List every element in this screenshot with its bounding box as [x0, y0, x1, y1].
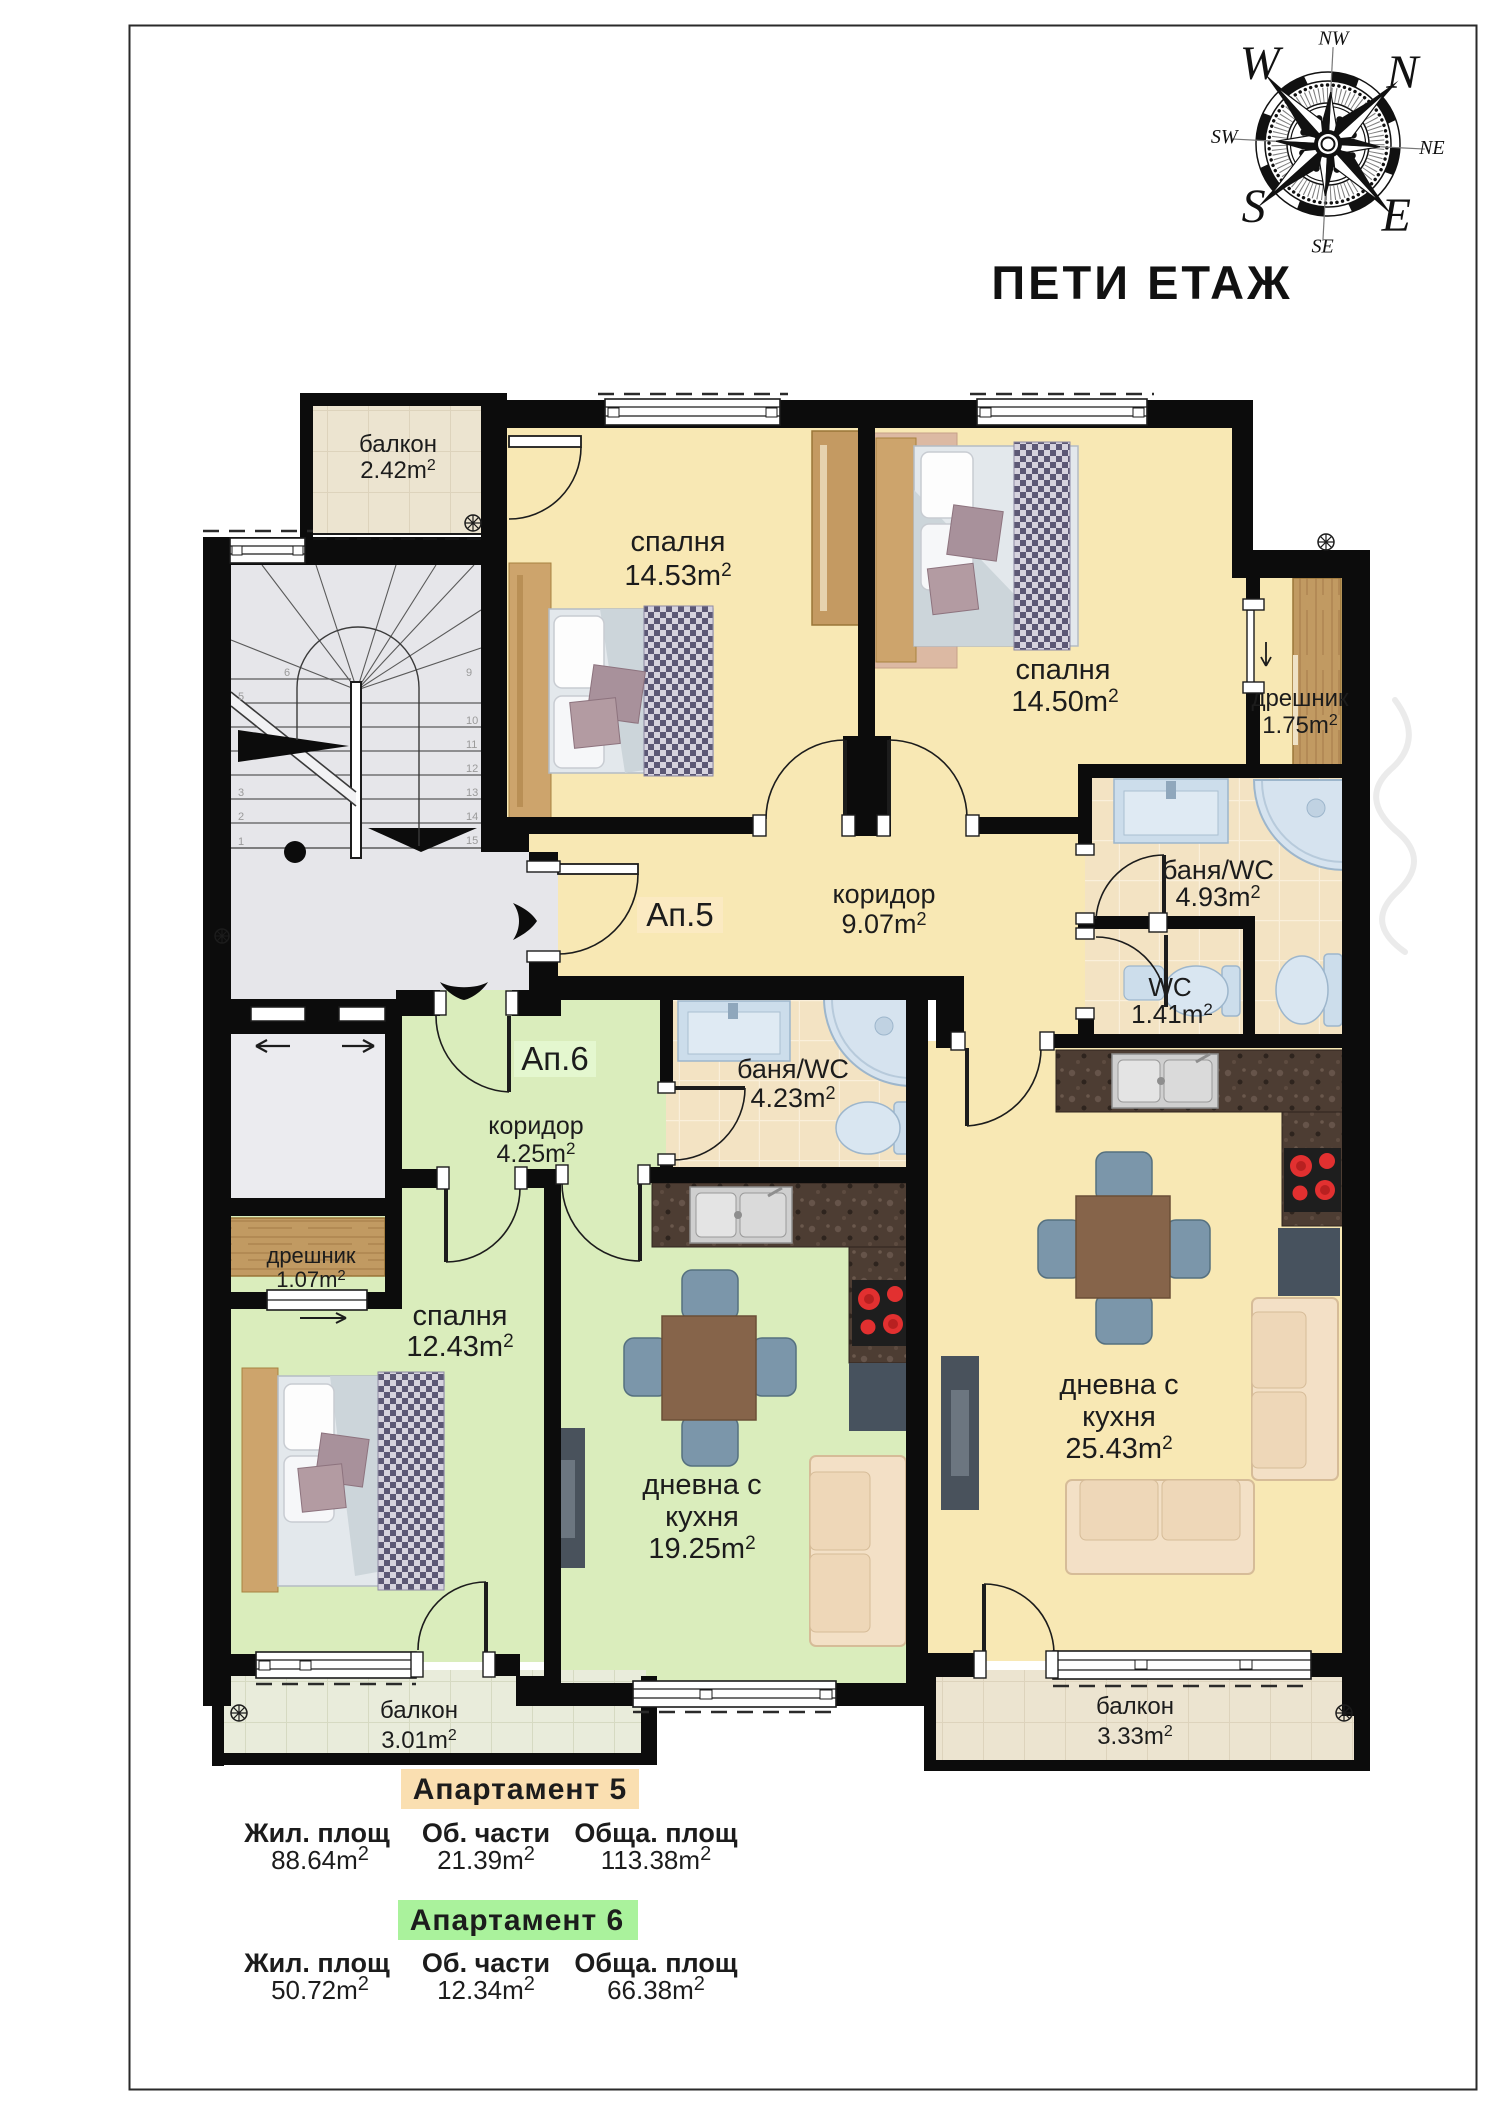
- svg-text:Апартамент 5: Апартамент 5: [413, 1773, 628, 1806]
- svg-text:WC: WC: [1148, 972, 1191, 1002]
- svg-text:3.33m2: 3.33m2: [1097, 1723, 1173, 1750]
- svg-text:Ап.5: Ап.5: [646, 896, 713, 933]
- svg-text:12.43m2: 12.43m2: [406, 1331, 513, 1363]
- svg-text:спалня: спалня: [1016, 654, 1111, 686]
- svg-text:NW: NW: [1317, 28, 1350, 50]
- svg-text:14.50m2: 14.50m2: [1011, 686, 1118, 718]
- svg-text:14.53m2: 14.53m2: [624, 560, 731, 592]
- svg-text:21.39m2: 21.39m2: [437, 1843, 535, 1875]
- svg-text:1.75m2: 1.75m2: [1262, 712, 1338, 739]
- svg-text:Обща. площ: Обща. площ: [574, 1948, 737, 1978]
- svg-text:дневна с: дневна с: [642, 1469, 761, 1501]
- svg-text:66.38m2: 66.38m2: [607, 1973, 705, 2005]
- svg-text:12.34m2: 12.34m2: [437, 1973, 535, 2005]
- svg-text:коридор: коридор: [832, 879, 935, 909]
- svg-text:кухня: кухня: [665, 1501, 739, 1533]
- svg-text:25.43m2: 25.43m2: [1065, 1433, 1172, 1465]
- svg-text:спалня: спалня: [413, 1300, 508, 1332]
- svg-text:9: 9: [466, 667, 472, 679]
- svg-text:Апартамент 6: Апартамент 6: [410, 1904, 625, 1937]
- svg-text:SW: SW: [1211, 126, 1240, 148]
- svg-text:5: 5: [238, 691, 244, 703]
- svg-text:10: 10: [466, 715, 478, 727]
- svg-text:6: 6: [284, 667, 290, 679]
- svg-text:4.23m2: 4.23m2: [750, 1083, 835, 1113]
- svg-text:2: 2: [238, 811, 244, 823]
- svg-text:W: W: [1240, 37, 1284, 90]
- svg-text:12: 12: [466, 763, 478, 775]
- svg-text:113.38m2: 113.38m2: [601, 1843, 711, 1875]
- svg-text:11: 11: [466, 739, 477, 751]
- svg-text:Ап.6: Ап.6: [521, 1040, 588, 1077]
- svg-text:NE: NE: [1418, 137, 1445, 159]
- svg-text:дневна с: дневна с: [1059, 1369, 1178, 1401]
- svg-text:3: 3: [238, 787, 244, 799]
- svg-text:N: N: [1385, 46, 1421, 99]
- svg-text:ПЕТИ ЕТАЖ: ПЕТИ ЕТАЖ: [991, 256, 1292, 309]
- svg-text:SE: SE: [1311, 235, 1333, 257]
- svg-text:4.93m2: 4.93m2: [1175, 882, 1260, 912]
- svg-text:50.72m2: 50.72m2: [271, 1973, 369, 2005]
- svg-text:3.01m2: 3.01m2: [381, 1727, 457, 1754]
- svg-text:1.07m2: 1.07m2: [276, 1267, 346, 1292]
- svg-text:Обща. площ: Обща. площ: [574, 1818, 737, 1848]
- svg-text:88.64m2: 88.64m2: [271, 1843, 369, 1875]
- svg-text:1.41m2: 1.41m2: [1131, 999, 1213, 1029]
- svg-text:балкон: балкон: [380, 1697, 458, 1724]
- svg-text:S: S: [1242, 180, 1266, 233]
- svg-text:4.25m2: 4.25m2: [497, 1139, 576, 1168]
- svg-text:кухня: кухня: [1082, 1401, 1156, 1433]
- svg-text:19.25m2: 19.25m2: [648, 1533, 755, 1565]
- svg-text:баня/WC: баня/WC: [1162, 855, 1274, 885]
- svg-text:коридор: коридор: [488, 1112, 583, 1140]
- svg-text:9.07m2: 9.07m2: [841, 909, 926, 939]
- svg-text:балкон: балкон: [359, 431, 437, 458]
- svg-text:спалня: спалня: [631, 526, 726, 558]
- svg-text:балкон: балкон: [1096, 1693, 1174, 1720]
- svg-text:15: 15: [466, 835, 478, 847]
- svg-text:14: 14: [466, 811, 478, 823]
- svg-text:13: 13: [466, 787, 478, 799]
- svg-text:E: E: [1381, 189, 1411, 242]
- svg-text:2.42m2: 2.42m2: [360, 457, 436, 484]
- svg-text:баня/WC: баня/WC: [737, 1054, 849, 1084]
- svg-text:дрешник: дрешник: [266, 1243, 355, 1268]
- svg-text:дрешник: дрешник: [1251, 685, 1349, 712]
- svg-text:1: 1: [238, 836, 244, 848]
